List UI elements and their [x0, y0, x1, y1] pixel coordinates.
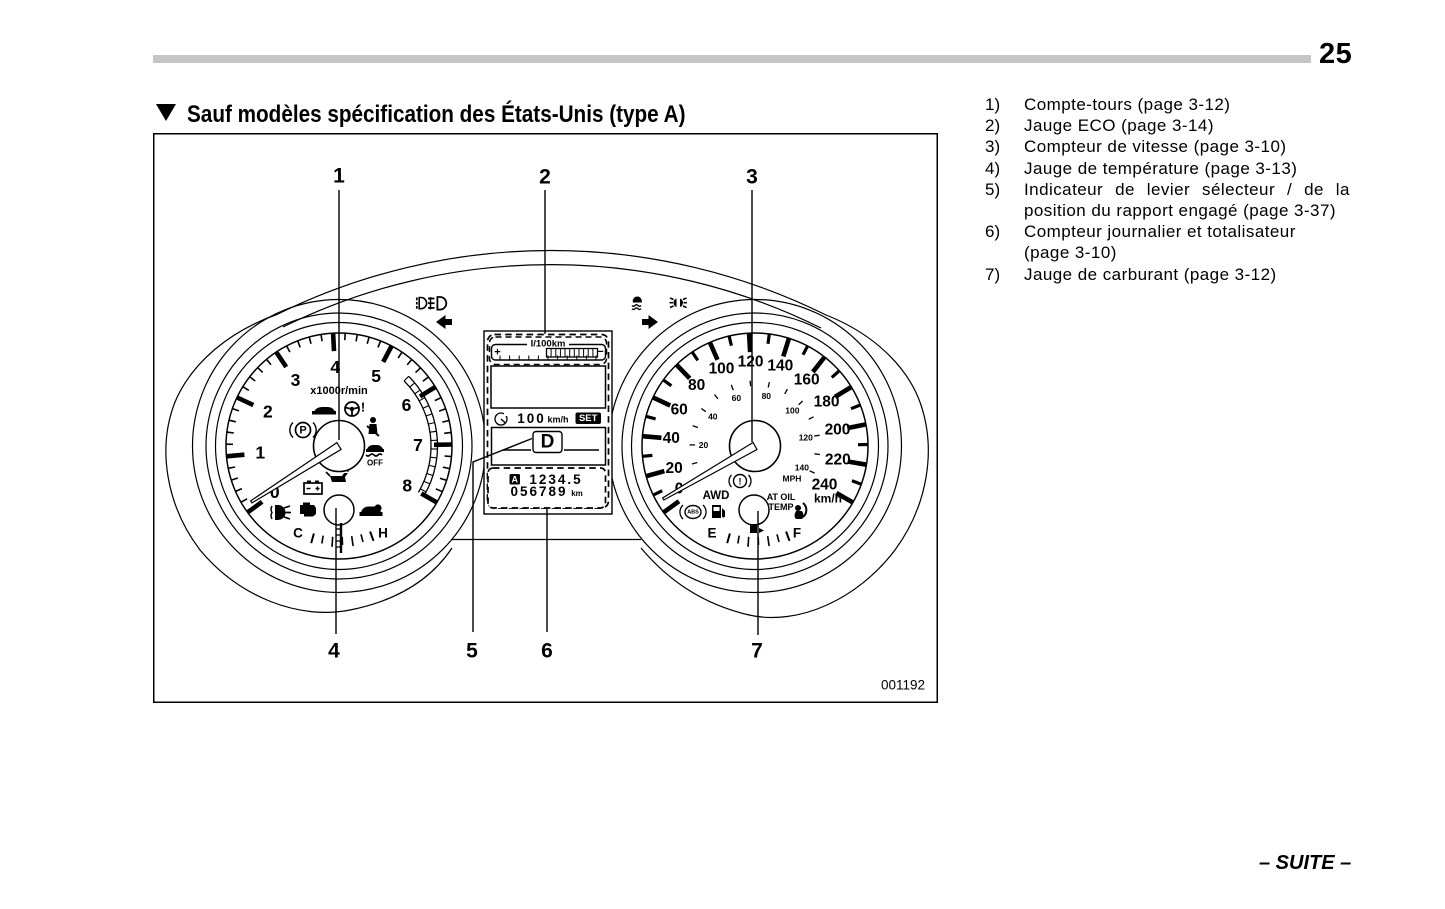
svg-text:20: 20 [699, 440, 709, 450]
svg-text:100: 100 [517, 411, 546, 426]
svg-text:40: 40 [708, 412, 718, 422]
svg-text:2: 2 [263, 402, 273, 422]
svg-text:AT OIL: AT OIL [767, 492, 796, 502]
svg-text:!: ! [361, 400, 365, 415]
svg-text:C: C [293, 526, 303, 541]
svg-text:!: ! [739, 477, 742, 487]
svg-text:60: 60 [732, 393, 742, 403]
svg-text:D: D [541, 432, 555, 453]
svg-text:100: 100 [709, 361, 735, 378]
svg-text:TEMP: TEMP [768, 502, 793, 512]
svg-text:1: 1 [333, 165, 345, 188]
svg-text:100: 100 [785, 406, 799, 416]
svg-text:60: 60 [671, 401, 688, 418]
svg-text:6: 6 [541, 640, 553, 663]
svg-text:ABS: ABS [687, 510, 699, 516]
svg-text:6: 6 [402, 395, 412, 415]
svg-text:80: 80 [762, 391, 772, 401]
svg-text:200: 200 [825, 422, 851, 439]
svg-text:P: P [299, 425, 306, 437]
svg-text:220: 220 [825, 451, 851, 468]
svg-text:2: 2 [539, 166, 551, 189]
svg-text:SET: SET [579, 413, 598, 424]
svg-text:20: 20 [665, 460, 682, 477]
svg-text:3: 3 [746, 166, 758, 189]
svg-text:H: H [378, 526, 388, 541]
svg-text:7: 7 [413, 435, 423, 455]
svg-text:4: 4 [328, 640, 340, 663]
svg-text:7: 7 [751, 640, 763, 663]
svg-text:120: 120 [799, 433, 813, 443]
svg-text:5: 5 [466, 640, 478, 663]
svg-text:MPH: MPH [783, 474, 802, 484]
svg-text:140: 140 [767, 357, 793, 374]
svg-text:120: 120 [738, 354, 764, 371]
svg-text:140: 140 [795, 462, 809, 472]
svg-text:km: km [571, 489, 583, 498]
svg-text:160: 160 [794, 371, 820, 388]
svg-text:E: E [707, 526, 716, 541]
svg-text:km/h: km/h [547, 415, 568, 425]
svg-text:3: 3 [291, 370, 301, 390]
svg-text:1: 1 [255, 443, 265, 463]
svg-text:AWD: AWD [703, 490, 730, 502]
svg-text:001192: 001192 [881, 678, 925, 693]
svg-text:056789: 056789 [510, 484, 567, 499]
svg-text:180: 180 [814, 394, 840, 411]
svg-text:40: 40 [663, 430, 680, 447]
svg-text:5: 5 [371, 366, 381, 386]
svg-text:A: A [511, 475, 518, 485]
svg-text:F: F [793, 526, 801, 541]
svg-text:80: 80 [688, 377, 705, 394]
svg-text:OFF: OFF [367, 459, 383, 468]
svg-text:−: − [597, 346, 603, 358]
svg-text:8: 8 [402, 476, 412, 496]
svg-text:km/h: km/h [814, 492, 842, 506]
